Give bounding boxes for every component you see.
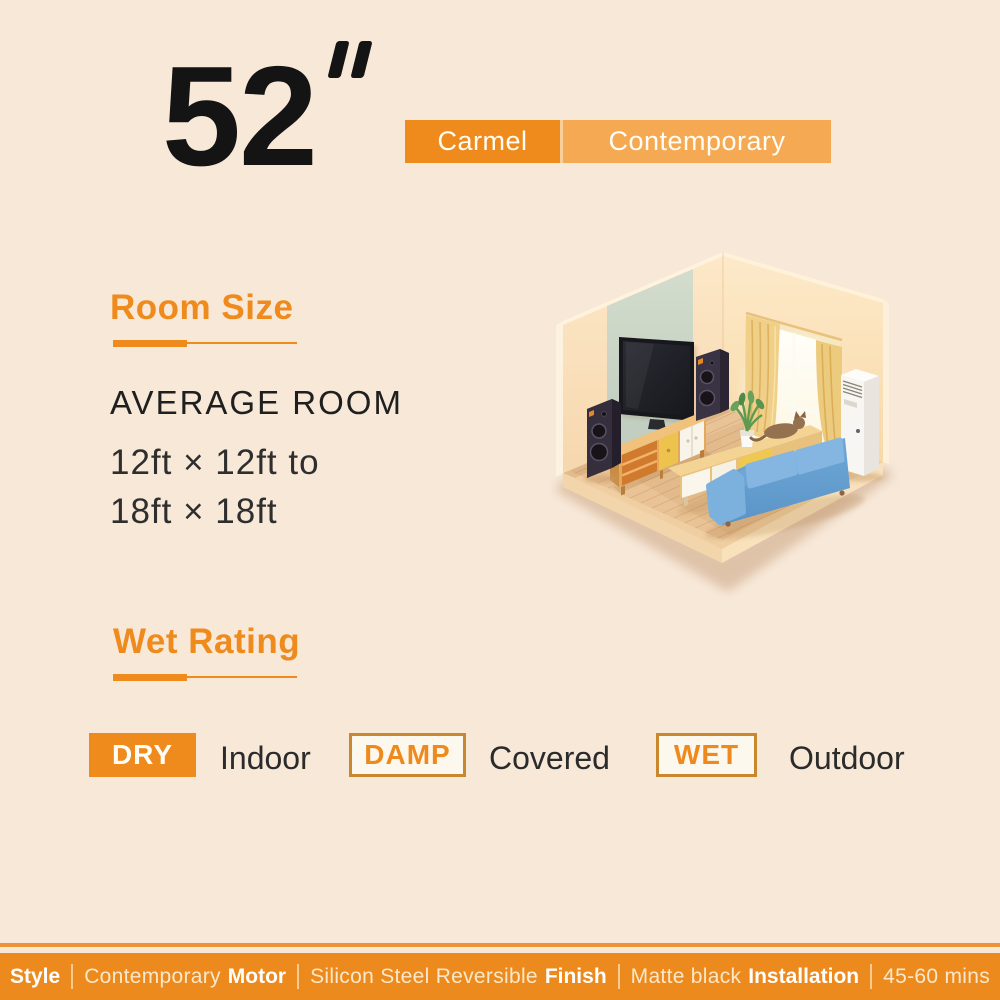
damp-location-label: Covered	[489, 740, 610, 777]
spec-divider	[297, 964, 299, 989]
room-dimensions-line1: 12ft × 12ft to	[110, 438, 320, 487]
underline-thin	[187, 342, 297, 344]
room-dimensions-line2: 18ft × 18ft	[110, 487, 320, 536]
wet-rating-underline	[113, 674, 297, 681]
spec-value: Silicon Steel Reversible	[310, 965, 538, 989]
series-name-tag: Carmel	[405, 120, 560, 163]
dry-badge: DRY	[89, 733, 196, 777]
inch-mark-left	[327, 41, 349, 78]
wall-tv	[619, 337, 697, 430]
room-dimensions: 12ft × 12ft to 18ft × 18ft	[110, 438, 320, 536]
spec-label: Finish	[545, 965, 607, 989]
style-name-tag: Contemporary	[563, 120, 831, 163]
spec-value: Contemporary	[84, 965, 221, 989]
spec-divider	[618, 964, 620, 989]
underline-thick	[113, 674, 187, 681]
footer-bar: Style Contemporary Motor Silicon Steel R…	[0, 953, 1000, 1000]
average-room-label: AVERAGE ROOM	[110, 384, 403, 422]
living-room-illustration	[540, 240, 910, 605]
underline-thick	[113, 340, 187, 347]
spec-divider	[71, 964, 73, 989]
spec-value: Matte black	[631, 965, 742, 989]
dry-location-label: Indoor	[220, 740, 311, 777]
wet-rating-heading: Wet Rating	[113, 622, 300, 662]
underline-thin	[187, 676, 297, 678]
spec-installation: Installation 45-60 mins	[748, 964, 990, 989]
spec-finish: Finish Matte black	[545, 964, 742, 989]
room-size-underline	[113, 340, 297, 347]
infographic-page: 52 Carmel Contemporary Room Size AVERAGE…	[0, 0, 1000, 1000]
fan-size-value: 52	[162, 46, 316, 188]
inch-mark-right	[350, 41, 372, 78]
damp-badge: DAMP	[349, 733, 466, 777]
spec-footer: Style Contemporary Motor Silicon Steel R…	[0, 943, 1000, 1000]
spec-style: Style Contemporary	[10, 964, 221, 989]
spec-motor: Motor Silicon Steel Reversible	[228, 964, 538, 989]
wet-badge: WET	[656, 733, 757, 777]
spec-label: Motor	[228, 965, 286, 989]
spec-divider	[870, 964, 872, 989]
spec-label: Installation	[748, 965, 859, 989]
spec-value: 45-60 mins	[883, 965, 990, 989]
room-size-heading: Room Size	[110, 288, 293, 328]
inch-marks-icon	[332, 41, 382, 81]
spec-label: Style	[10, 965, 60, 989]
tower-speaker-right	[696, 349, 729, 421]
ac-display	[856, 429, 860, 433]
series-banner: Carmel Contemporary	[405, 120, 831, 163]
wet-location-label: Outdoor	[789, 740, 905, 777]
